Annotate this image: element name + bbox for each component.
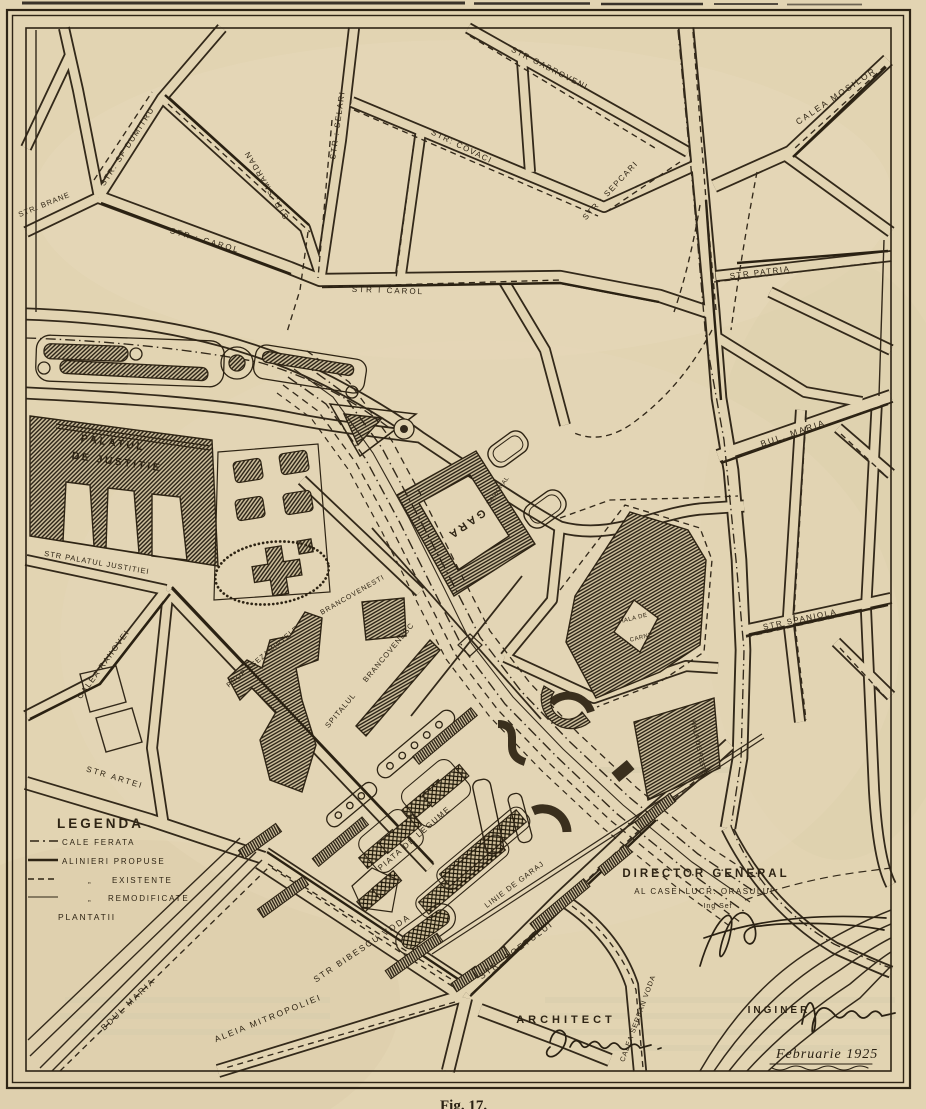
svg-text:INGINER: INGINER [748, 1005, 811, 1016]
svg-text:ARCHITECT: ARCHITECT [516, 1014, 616, 1026]
svg-text:CALE FERATA: CALE FERATA [62, 838, 135, 847]
svg-text:Februarie 1925: Februarie 1925 [775, 1047, 878, 1062]
svg-text:REMODIFICATE: REMODIFICATE [108, 894, 189, 903]
svg-text:LEGENDA: LEGENDA [57, 816, 144, 831]
svg-text:DIRECTOR GENERAL: DIRECTOR GENERAL [622, 868, 789, 880]
svg-text:PLANTATII: PLANTATII [58, 912, 116, 922]
svg-text:„: „ [88, 894, 92, 903]
svg-text:„: „ [88, 876, 92, 885]
svg-text:Ing Sef: Ing Sef [703, 903, 732, 910]
svg-text:ALINIERI PROPUSE: ALINIERI PROPUSE [62, 857, 166, 866]
svg-text:EXISTENTE: EXISTENTE [112, 876, 173, 885]
svg-text:AL CASEI LUCR. ORASULUI: AL CASEI LUCR. ORASULUI [634, 887, 774, 896]
svg-text:Fig. 17.: Fig. 17. [440, 1098, 487, 1109]
